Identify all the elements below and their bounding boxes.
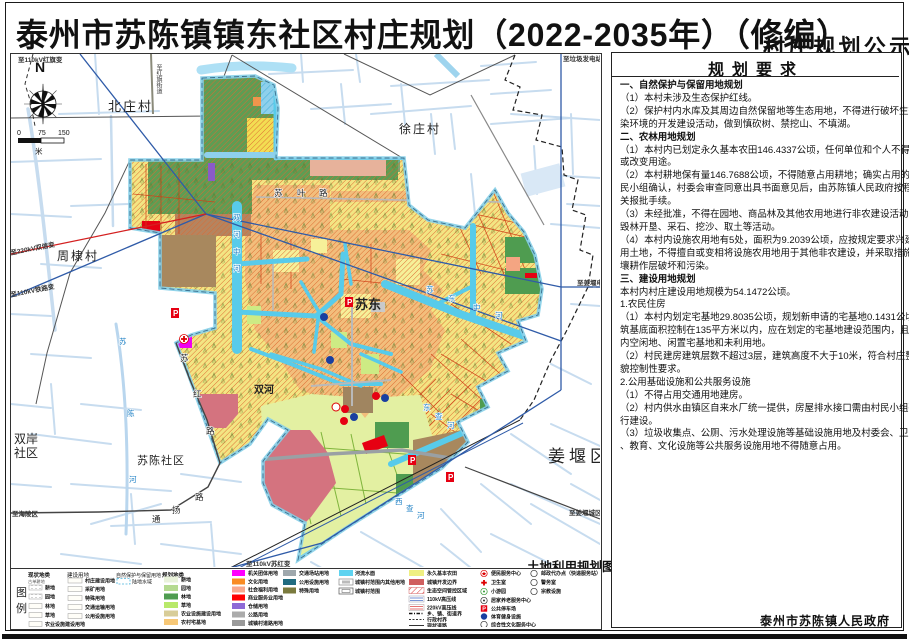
svg-text:中: 中 <box>473 302 481 312</box>
svg-text:现状地类: 现状地类 <box>28 571 51 579</box>
svg-text:至姜堰城区: 至姜堰城区 <box>569 508 600 517</box>
svg-text:园地: 园地 <box>45 594 55 601</box>
svg-text:苏: 苏 <box>426 284 434 294</box>
svg-text:商业服务业用地: 商业服务业用地 <box>248 595 283 602</box>
svg-text:林地: 林地 <box>45 603 55 610</box>
svg-text:至110kV苏红变: 至110kV苏红变 <box>246 559 291 567</box>
svg-text:P: P <box>173 309 179 318</box>
svg-text:河: 河 <box>495 311 503 320</box>
svg-text:机关团体用地: 机关团体用地 <box>247 570 278 577</box>
svg-text:古单耕地: 古单耕地 <box>28 578 46 585</box>
svg-text:150: 150 <box>58 130 70 137</box>
svg-text:例: 例 <box>16 601 27 615</box>
svg-text:交通运输用地: 交通运输用地 <box>85 604 115 611</box>
svg-text:叶: 叶 <box>297 188 306 198</box>
svg-text:草地: 草地 <box>181 602 191 609</box>
svg-text:苏: 苏 <box>274 188 283 198</box>
svg-text:河: 河 <box>233 230 241 239</box>
svg-text:至红旗街道: 至红旗街道 <box>155 64 162 95</box>
svg-text:图: 图 <box>16 586 27 599</box>
svg-text:特殊用地: 特殊用地 <box>85 595 105 602</box>
svg-text:双河: 双河 <box>254 384 274 396</box>
svg-text:河: 河 <box>417 511 425 520</box>
svg-text:公用设施用地: 公用设施用地 <box>299 579 329 586</box>
svg-text:东: 东 <box>423 402 431 412</box>
svg-text:园地: 园地 <box>181 585 191 592</box>
svg-text:特殊用地: 特殊用地 <box>299 588 319 595</box>
svg-text:路: 路 <box>195 492 204 502</box>
svg-text:P: P <box>482 607 486 613</box>
svg-text:体育健身设施: 体育健身设施 <box>491 614 521 621</box>
svg-text:便民服务中心: 便民服务中心 <box>491 570 521 577</box>
svg-text:行政村界: 行政村界 <box>426 617 448 624</box>
svg-text:西: 西 <box>395 497 403 506</box>
svg-text:路: 路 <box>319 188 328 198</box>
svg-text:农村宅基地: 农村宅基地 <box>180 619 206 626</box>
svg-text:米: 米 <box>35 146 43 156</box>
svg-text:P: P <box>410 456 416 465</box>
svg-text:城镇村范围: 城镇村范围 <box>355 588 380 595</box>
svg-text:查: 查 <box>406 503 414 513</box>
svg-text:永久基本农田: 永久基本农田 <box>426 570 457 577</box>
svg-text:P: P <box>448 473 454 482</box>
svg-text:周棣村: 周棣村 <box>57 248 99 263</box>
svg-text:乡、镇、街道界: 乡、镇、街道界 <box>427 611 463 618</box>
svg-text:公路用地: 公路用地 <box>248 612 268 619</box>
svg-text:至垃圾发电站: 至垃圾发电站 <box>563 54 600 63</box>
svg-text:P: P <box>347 298 353 307</box>
svg-text:陆地水域: 陆地水域 <box>132 579 152 586</box>
svg-text:东: 东 <box>448 293 456 303</box>
svg-text:耕地: 耕地 <box>44 585 55 592</box>
svg-text:查: 查 <box>435 411 443 421</box>
svg-text:陈: 陈 <box>127 408 135 418</box>
svg-text:河: 河 <box>233 264 241 273</box>
svg-text:农业设施建设用地: 农业设施建设用地 <box>44 621 85 627</box>
svg-text:姜堰区: 姜堰区 <box>548 447 600 466</box>
svg-text:综合性文化服务中心: 综合性文化服务中心 <box>491 622 536 628</box>
svg-text:苏东: 苏东 <box>355 297 381 312</box>
svg-text:交通场站用地: 交通场站用地 <box>299 570 329 577</box>
svg-text:城镇村道路用地: 城镇村道路用地 <box>248 620 283 627</box>
svg-text:耕地: 耕地 <box>180 577 191 584</box>
svg-text:草地: 草地 <box>45 612 55 619</box>
svg-text:河流水面: 河流水面 <box>354 570 375 577</box>
svg-text:公用设施用地: 公用设施用地 <box>85 613 115 620</box>
svg-text:苏: 苏 <box>119 336 127 346</box>
svg-text:小游园: 小游园 <box>491 588 506 595</box>
svg-text:徐庄村: 徐庄村 <box>399 121 441 136</box>
svg-text:苏陈社区: 苏陈社区 <box>137 453 185 467</box>
svg-text:林地: 林地 <box>181 594 191 601</box>
svg-text:河: 河 <box>447 421 455 430</box>
svg-text:扬: 扬 <box>172 505 181 515</box>
svg-text:村庄建设用地: 村庄建设用地 <box>84 578 115 585</box>
svg-text:双: 双 <box>233 213 241 222</box>
svg-text:河: 河 <box>129 475 137 484</box>
svg-text:至110kV红旗变: 至110kV红旗变 <box>18 55 63 64</box>
svg-text:自然保护与保留用地: 自然保护与保留用地 <box>116 572 161 579</box>
svg-text:采矿用地: 采矿用地 <box>84 586 105 593</box>
svg-text:公共停车场: 公共停车场 <box>491 606 516 613</box>
svg-text:仓储用地: 仓储用地 <box>247 603 268 610</box>
svg-text:城镇村范围内其他用地: 城镇村范围内其他用地 <box>355 579 405 586</box>
svg-text:社区: 社区 <box>14 445 38 460</box>
svg-text:红: 红 <box>193 389 202 399</box>
svg-text:路: 路 <box>206 426 215 436</box>
svg-text:城镇开发边界: 城镇开发边界 <box>427 579 458 586</box>
svg-text:至海陵区: 至海陵区 <box>12 509 39 518</box>
svg-text:北庄村: 北庄村 <box>108 99 153 114</box>
svg-text:通: 通 <box>152 514 161 524</box>
svg-text:宗教设施: 宗教设施 <box>541 588 561 595</box>
svg-text:双岸: 双岸 <box>14 432 38 446</box>
svg-text:220kV高压线: 220kV高压线 <box>427 605 456 612</box>
svg-text:苏: 苏 <box>180 353 189 363</box>
svg-text:农业设施建设用地: 农业设施建设用地 <box>180 611 221 618</box>
svg-text:居家养老服务中心: 居家养老服务中心 <box>491 597 531 604</box>
svg-text:中: 中 <box>233 246 241 256</box>
svg-text:至姜堰电厂: 至姜堰电厂 <box>577 278 600 287</box>
svg-text:社会福利用地: 社会福利用地 <box>247 587 278 594</box>
svg-text:现状道路: 现状道路 <box>427 623 448 628</box>
svg-text:110kV高压线: 110kV高压线 <box>427 596 456 603</box>
svg-text:卫生室: 卫生室 <box>491 579 506 586</box>
svg-text:邮政代办点（快递服务站）: 邮政代办点（快递服务站） <box>541 570 599 577</box>
svg-text:生态空间管控区域: 生态空间管控区域 <box>427 588 467 595</box>
svg-text:警务室: 警务室 <box>540 579 556 586</box>
svg-text:75: 75 <box>38 130 46 137</box>
svg-text:文化用地: 文化用地 <box>248 579 268 586</box>
svg-text:0: 0 <box>17 130 21 137</box>
